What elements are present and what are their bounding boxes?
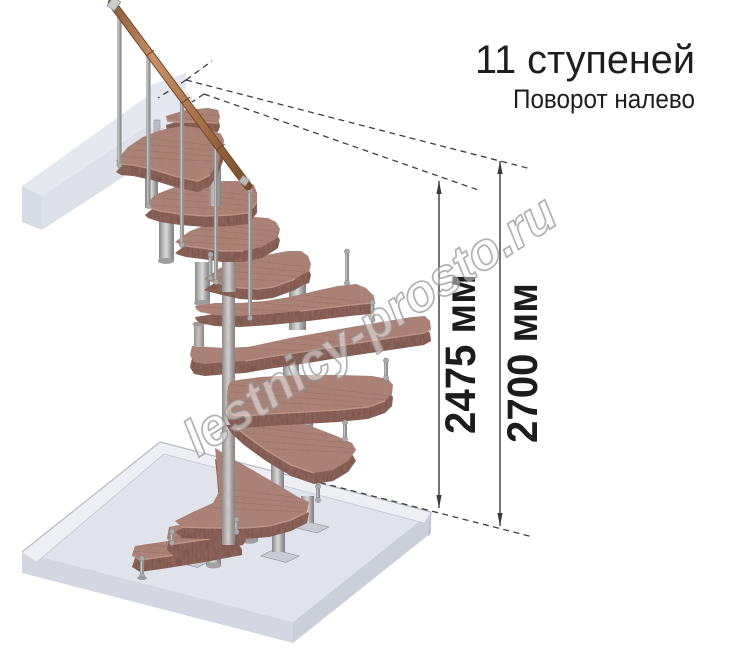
svg-text:Поворот налево: Поворот налево [513, 84, 695, 114]
svg-text:2700 мм: 2700 мм [499, 283, 547, 443]
svg-text:11 ступеней: 11 ступеней [475, 38, 695, 82]
